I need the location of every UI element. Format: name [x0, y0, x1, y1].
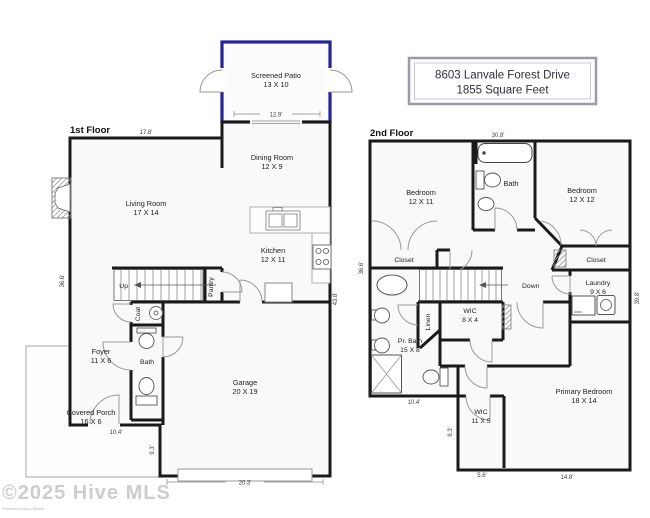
f2-bath-sink-icon [478, 198, 494, 211]
floor2-label: 2nd Floor [370, 128, 414, 139]
closet2-label: Closet [586, 257, 605, 264]
f2-toilet-icon [476, 171, 501, 189]
washer-icon [572, 296, 595, 315]
dim-garage-side: 9.3' [150, 445, 156, 455]
prbath-toilet-icon [423, 368, 448, 386]
coat-label: Coat [135, 307, 142, 321]
address-title-box: 8603 Lanvale Forest Drive 1855 Square Fe… [409, 58, 596, 104]
dim-f1-right: 43.8' [333, 293, 339, 306]
dim-patio: 12.9' [270, 113, 283, 119]
dryer-icon [597, 296, 615, 315]
f2-bath-label: Bath [503, 179, 518, 188]
stairs-up [114, 270, 216, 301]
closet-slider-icon [554, 250, 566, 267]
sqft-line: 1855 Square Feet [456, 85, 549, 97]
kitchen-name: Kitchen [261, 246, 285, 255]
f2-bathtub-icon [478, 144, 532, 163]
floor1-plan: 1st Floor 17.8' Screened Patio 13 X 10 1… [26, 42, 352, 487]
address-line: 8603 Lanvale Forest Drive [435, 70, 570, 82]
dining-name: Dining Room [251, 153, 293, 162]
kitchen-dims: 12 X 11 [261, 255, 286, 264]
patio-door-left-icon [200, 68, 226, 92]
dim-f1-top: 17.8' [140, 130, 153, 136]
patio-slider-gap [250, 119, 302, 125]
watermark-main: ©2025 Hive MLS [2, 482, 171, 504]
primary-dims: 18 X 14 [571, 396, 596, 405]
dim-f2-right: 39.8' [635, 292, 641, 305]
stairs-down [420, 270, 509, 301]
water-heater-icon [150, 307, 163, 320]
down-label: Down [522, 283, 540, 290]
laundry-dims: 9 X 6 [590, 289, 606, 296]
wic1-name: WIC [463, 308, 476, 315]
dim-prbath: 10.4' [408, 400, 421, 406]
wic1-dims: 8 X 4 [462, 317, 478, 324]
fridge-icon [265, 283, 292, 302]
patio-name: Screened Patio [251, 71, 301, 80]
up-label: Up [119, 283, 128, 290]
floor1-label: 1st Floor [70, 125, 110, 136]
shower-icon [372, 355, 402, 393]
watermark-sub: Powered by Apex Sketch [2, 507, 44, 511]
bedroom1-dims: 12 X 11 [409, 197, 434, 206]
patio-dims: 13 X 10 [263, 80, 288, 89]
foyer-name: Foyer [92, 347, 111, 356]
porch-dims: 16 X 6 [80, 417, 101, 426]
closet1-label: Closet [394, 257, 413, 264]
floor2-plan: 2nd Floor 30.8' Bedroom 12 X 11 Bath Bed… [359, 128, 641, 481]
wic2-name: WIC [474, 409, 487, 416]
foyer-dims: 11 X 6 [91, 356, 112, 365]
dim-f2-left: 36.6' [359, 262, 365, 275]
floorplan-page: 1st Floor 17.8' Screened Patio 13 X 10 1… [0, 0, 650, 518]
dim-primary: 14.8' [561, 475, 574, 481]
watermark: ©2025 Hive MLS Powered by Apex Sketch [2, 482, 171, 511]
living-dims: 17 X 14 [133, 208, 158, 217]
dim-foyer: 10.4' [110, 430, 123, 436]
bedroom2-name: Bedroom [567, 186, 597, 195]
bedroom1-name: Bedroom [406, 188, 436, 197]
laundry-name: Laundry [586, 280, 611, 287]
dim-f1-left: 36.6' [60, 275, 66, 288]
dim-garage: 20.3' [239, 481, 252, 487]
bedroom2-dims: 12 X 12 [569, 195, 594, 204]
living-name: Living Room [126, 199, 167, 208]
garage-name: Garage [233, 378, 257, 387]
dim-wic-side: 8.3' [448, 427, 454, 437]
floorplan-canvas: 1st Floor 17.8' Screened Patio 13 X 10 1… [0, 0, 650, 518]
kitchen-sink-icon [266, 208, 300, 231]
primary-name: Primary Bedroom [556, 387, 613, 396]
prbath-dims: 15 X 8 [400, 347, 420, 354]
prbath-name: Pr. Bath [398, 338, 422, 345]
f1-bath-label: Bath [140, 359, 154, 366]
dim-f2-top: 30.8' [492, 133, 505, 139]
garage-door-icon [178, 469, 312, 481]
garden-tub-icon [377, 275, 407, 295]
dim-wic: 5.6' [477, 473, 487, 479]
linen-label: Linen [425, 313, 432, 330]
wic2-dims: 11 X 5 [471, 418, 490, 425]
patio-door-right-icon [327, 68, 353, 92]
stove-icon [313, 245, 331, 269]
fireplace-icon [52, 178, 71, 218]
wic-slider-icon [502, 305, 511, 329]
garage-dims: 20 X 19 [232, 387, 257, 396]
pantry-label: Pantry [208, 277, 215, 297]
porch-name: Covered Porch [67, 408, 116, 417]
dining-dims: 12 X 9 [261, 162, 282, 171]
